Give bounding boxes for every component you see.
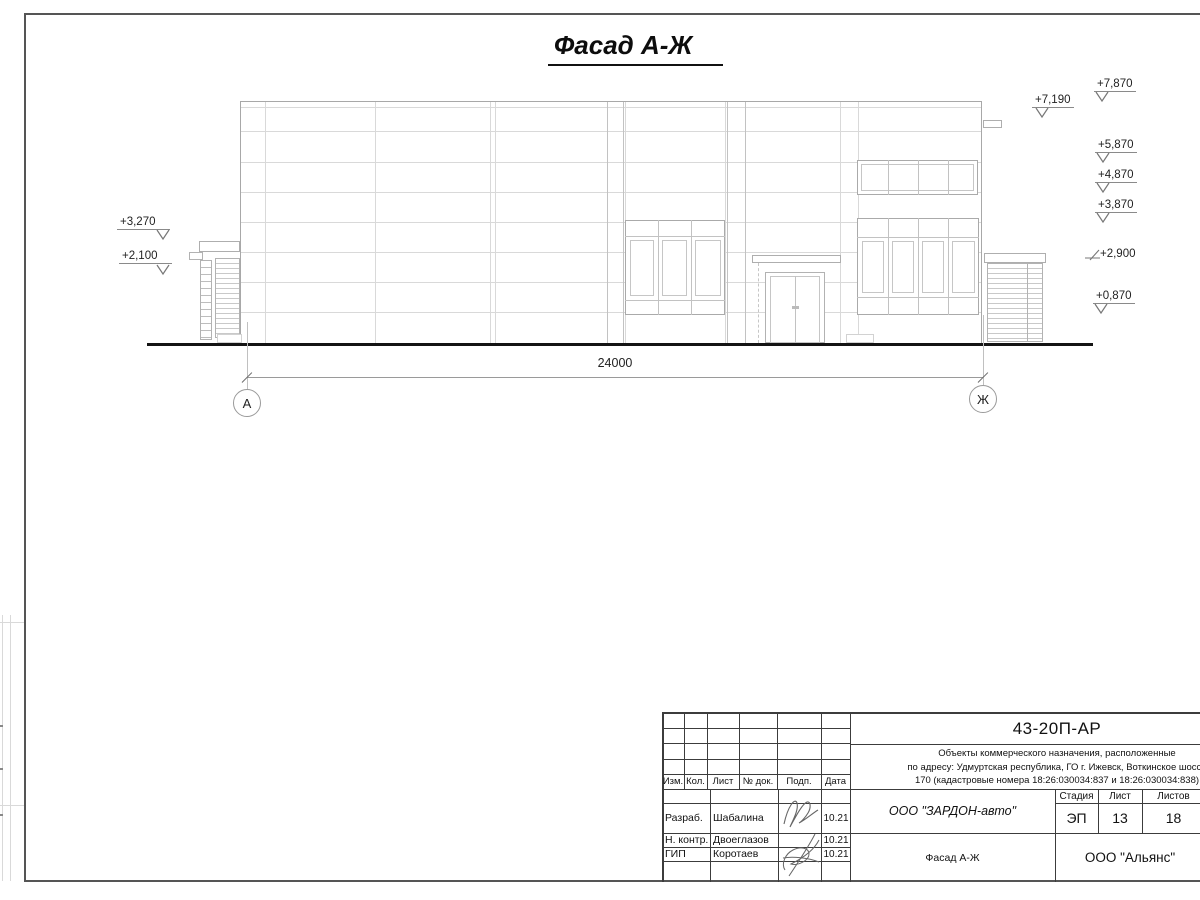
left-wing-louver <box>215 258 240 338</box>
elevation-arrow-icon <box>155 229 171 241</box>
margin-row-line <box>0 622 24 623</box>
axis-bubble-zh: Ж <box>969 385 997 413</box>
window-pane <box>922 241 944 293</box>
col-ndok: № док. <box>739 774 777 789</box>
elevation-value: +4,870 <box>1095 169 1137 183</box>
margin-row-line <box>0 805 24 806</box>
titleblock-line <box>710 789 711 882</box>
project-address-line: по адресу: Удмуртская республика, ГО г. … <box>850 761 1200 775</box>
customer-name: ООО "ЗАРДОН-авто" <box>850 789 1055 833</box>
window-pane <box>892 241 914 293</box>
elevation-value: +3,270 <box>117 216 170 230</box>
titleblock-border <box>662 712 664 882</box>
elevation-mark: +7,190 <box>1032 94 1074 108</box>
col-list: Лист <box>707 774 739 789</box>
org-name: ООО "Альянс" <box>1055 833 1200 882</box>
drawing-sheet: Фасад А-Ж <box>0 0 1200 900</box>
right-wing-cap <box>984 253 1046 263</box>
elevation-arrow-icon <box>155 264 171 276</box>
window-transom-line <box>625 236 725 237</box>
elevation-mark: +2,100 <box>119 250 172 264</box>
window-transom-line <box>625 300 725 301</box>
left-wing-ledge <box>189 252 203 260</box>
elevation-arrow-icon <box>1095 152 1111 164</box>
margin-text-mark <box>0 725 3 727</box>
margin-text-mark <box>0 814 3 816</box>
elevation-slash-icon <box>1085 249 1103 262</box>
elevation-mark: +3,870 <box>1095 199 1137 213</box>
window-pane <box>695 240 721 296</box>
sheet-number: 13 <box>1098 803 1142 833</box>
door-handle <box>792 306 799 309</box>
downpipe-dashed-line <box>758 263 759 343</box>
right-wing-louver-divider <box>1027 263 1028 342</box>
col-data: Дата <box>821 774 850 789</box>
stage-label: Стадия <box>1055 789 1098 803</box>
window-mullion-line <box>691 220 692 315</box>
doc-number: 43-20П-АР <box>850 713 1200 744</box>
sheet-name: Фасад А-Ж <box>850 833 1055 882</box>
col-podp: Подп. <box>777 774 821 789</box>
titleblock-line <box>850 744 1200 745</box>
sheets-label: Листов <box>1142 789 1200 803</box>
elevation-arrow-icon <box>1095 182 1111 194</box>
row-name: Коротаев <box>713 847 777 861</box>
elevation-mark: +4,870 <box>1095 169 1137 183</box>
row-name: Двоеглазов <box>713 833 777 847</box>
elevation-value: +5,870 <box>1095 139 1137 153</box>
elevation-mark: +2,900 <box>1087 248 1136 260</box>
entrance-canopy <box>752 255 841 263</box>
elevation-arrow-icon <box>1034 107 1050 119</box>
window-mullion-line <box>888 160 889 195</box>
sheet-label: Лист <box>1098 789 1142 803</box>
window-pane <box>630 240 654 296</box>
left-wing-plinth <box>217 334 242 343</box>
window-mullion-line <box>948 160 949 195</box>
margin-column-line <box>2 615 3 881</box>
row-date: 10.21 <box>822 803 850 833</box>
margin-column-line <box>10 615 11 881</box>
project-address: Объекты коммерческого назначения, распол… <box>850 747 1200 788</box>
elevation-value: +3,870 <box>1095 199 1137 213</box>
elevation-value: +2,900 <box>1100 248 1136 260</box>
elevation-mark: +5,870 <box>1095 139 1137 153</box>
window-mullion-line <box>948 218 949 315</box>
col-kol: Кол. <box>684 774 707 789</box>
row-role: Н. контр. <box>665 833 710 847</box>
elevation-value: +2,100 <box>119 250 172 264</box>
project-address-line: Объекты коммерческого назначения, распол… <box>850 747 1200 761</box>
signature-icon <box>779 830 822 878</box>
axis-extension-line <box>247 322 248 389</box>
door-leaf-split-line <box>795 276 796 343</box>
window-pane <box>952 241 975 293</box>
margin-text-mark <box>0 768 3 770</box>
elevation-arrow-icon <box>1094 91 1110 103</box>
right-wing-louver <box>987 263 1043 342</box>
window-mullion-line <box>918 160 919 195</box>
window-mullion-line <box>918 218 919 315</box>
left-wing-ladder-louver <box>200 260 212 340</box>
window-mullion-line <box>888 218 889 315</box>
elevation-value: +7,190 <box>1032 94 1074 108</box>
row-date: 10.21 <box>822 833 850 847</box>
dimension-value: 24000 <box>575 356 655 370</box>
elevation-mark: +7,870 <box>1094 78 1136 92</box>
row-name: Шабалина <box>713 803 777 833</box>
elevation-mark: +0,870 <box>1093 290 1135 304</box>
elevation-arrow-icon <box>1095 212 1111 224</box>
sheets-total: 18 <box>1142 803 1200 833</box>
axis-bubble-a: А <box>233 389 261 417</box>
dimension-line <box>247 377 983 378</box>
elevation-value: +0,870 <box>1093 290 1135 304</box>
row-role: Разраб. <box>665 803 710 833</box>
elevation-arrow-icon <box>1093 303 1109 315</box>
window-pane <box>862 241 884 293</box>
elevation-mark: +3,270 <box>117 216 170 230</box>
ground-line <box>147 343 1093 346</box>
signature-icon <box>780 794 820 832</box>
project-address-line: 170 (кадастровые номера 18:26:030034:837… <box>850 774 1200 788</box>
left-wing-cap <box>199 241 240 252</box>
row-role: ГИП <box>665 847 710 861</box>
page-title: Фасад А-Ж <box>548 30 723 66</box>
row-date: 10.21 <box>822 847 850 861</box>
elevation-value: +7,870 <box>1094 78 1136 92</box>
frame-top-line <box>24 13 1200 15</box>
col-izm: Изм. <box>662 774 684 789</box>
entrance-step <box>846 334 874 343</box>
stage-value: ЭП <box>1055 803 1098 833</box>
frame-left-line <box>24 13 26 882</box>
window-pane <box>662 240 687 296</box>
roof-pipe <box>983 120 1002 128</box>
window-mullion-line <box>658 220 659 315</box>
